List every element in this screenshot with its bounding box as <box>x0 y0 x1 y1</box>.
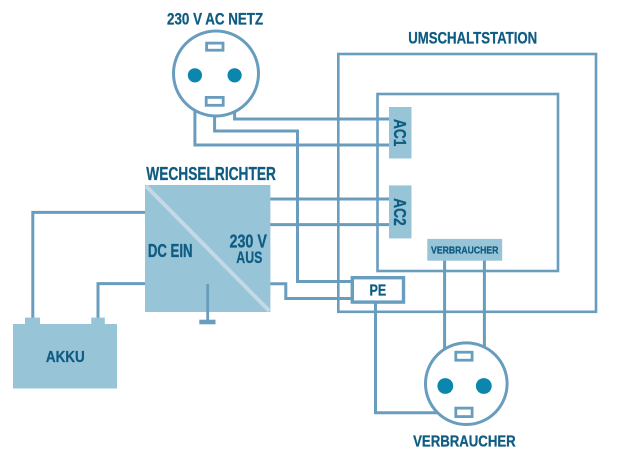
svg-text:AC2: AC2 <box>390 198 410 226</box>
svg-text:PE: PE <box>370 283 387 300</box>
svg-text:VERBRAUCHER: VERBRAUCHER <box>413 433 516 450</box>
svg-text:DC EIN: DC EIN <box>148 241 193 261</box>
svg-text:AC1: AC1 <box>390 119 410 147</box>
svg-text:AKKU: AKKU <box>46 349 85 366</box>
svg-text:UMSCHALTSTATION: UMSCHALTSTATION <box>408 28 537 47</box>
svg-text:AUS: AUS <box>236 248 262 267</box>
svg-text:VERBRAUCHER: VERBRAUCHER <box>431 246 499 257</box>
svg-text:WECHSELRICHTER: WECHSELRICHTER <box>146 164 276 184</box>
svg-text:230 V AC NETZ: 230 V AC NETZ <box>167 10 263 29</box>
